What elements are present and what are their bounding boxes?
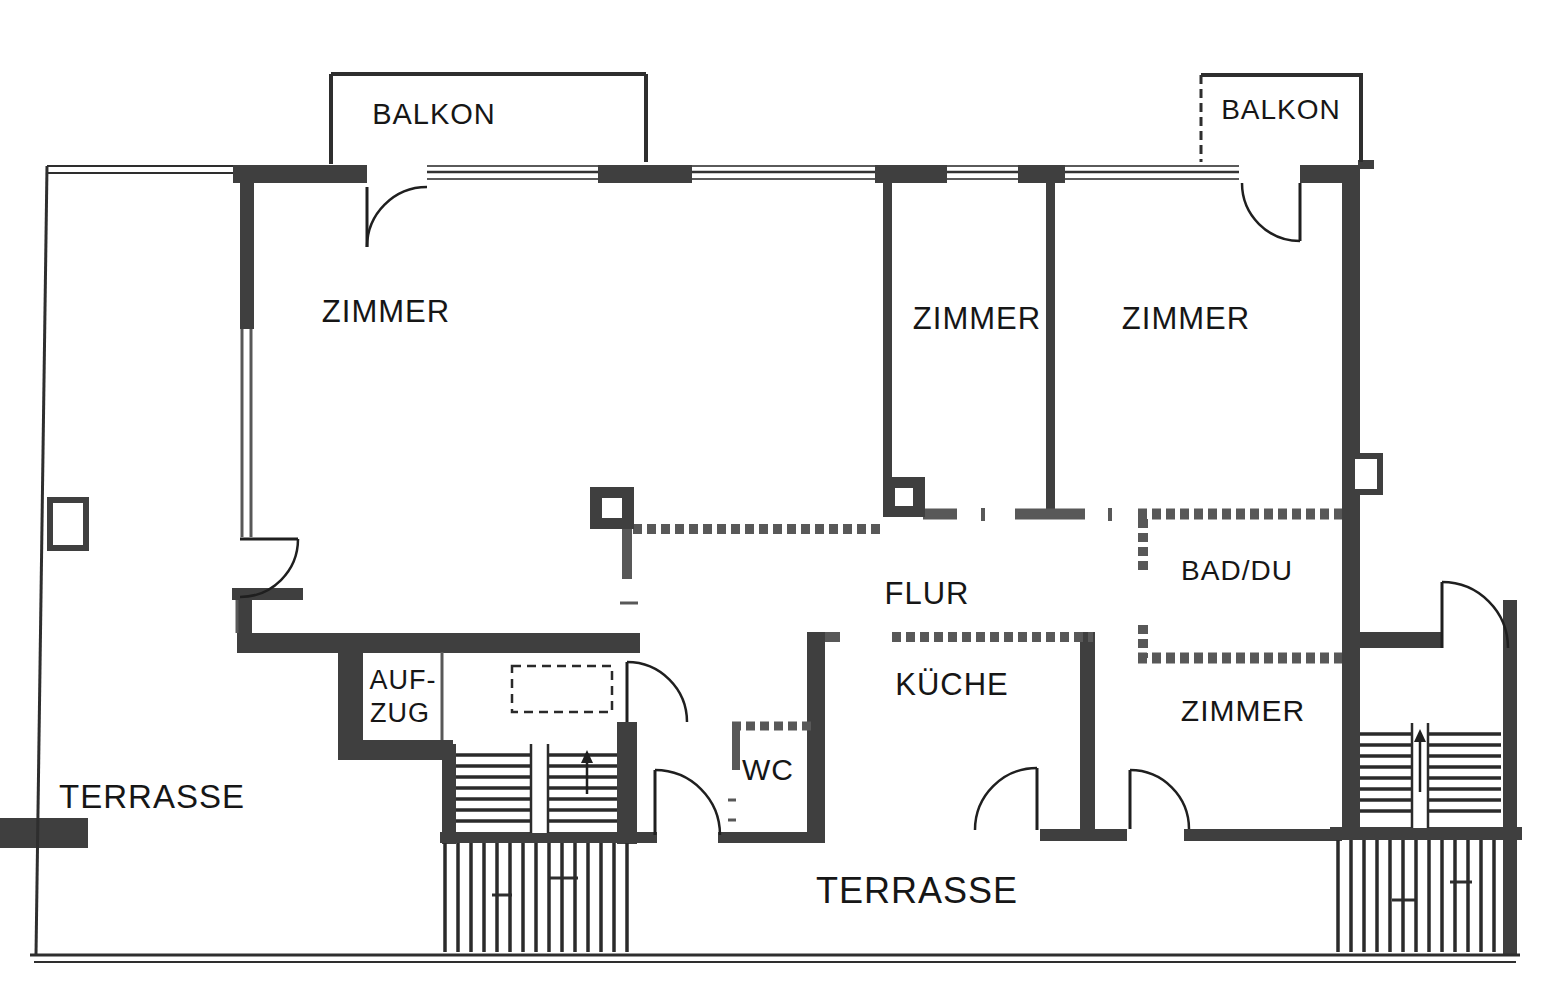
room-label-aufzug-line1: AUF- (370, 665, 437, 695)
stair-stringer (531, 744, 548, 833)
wall (598, 165, 692, 183)
room-label-balkon-right: BALKON (1221, 94, 1341, 125)
room-label-flur: FLUR (885, 576, 970, 611)
wall (718, 832, 807, 843)
wall (440, 832, 657, 843)
wall (1184, 829, 1342, 841)
pillar-core (895, 488, 913, 506)
room-label-kueche: KÜCHE (895, 667, 1009, 702)
wall (1018, 165, 1065, 183)
floor-plan-svg: BALKONBALKONZIMMERZIMMERZIMMERFLURBAD/DU… (0, 0, 1553, 1000)
wall (1360, 632, 1442, 648)
wall (338, 740, 453, 760)
wall (1046, 183, 1055, 515)
floor-plan-scan: BALKONBALKONZIMMERZIMMERZIMMERFLURBAD/DU… (0, 0, 1553, 1000)
wall (237, 595, 252, 637)
wall (1342, 165, 1360, 840)
room-label-bad-du: BAD/DU (1181, 555, 1293, 586)
room-label-zimmer-right: ZIMMER (1122, 301, 1250, 336)
room-label-aufzug-line2: ZUG (370, 698, 430, 728)
room-label-wc: WC (742, 753, 794, 786)
pillar-core (602, 498, 622, 518)
room-label-terrasse-west: TERRASSE (59, 778, 245, 815)
wall (442, 744, 456, 844)
room-label-balkon-left: BALKON (372, 98, 496, 130)
wall (875, 165, 947, 183)
room-label-terrasse-south: TERRASSE (816, 870, 1018, 911)
wall (1040, 829, 1127, 841)
wall (1080, 632, 1095, 832)
wall (1330, 827, 1522, 840)
wall (240, 165, 254, 329)
wall (883, 183, 892, 477)
room-label-zimmer-south: ZIMMER (1181, 694, 1305, 727)
wall (617, 722, 637, 844)
wall-fixture (50, 500, 86, 548)
paper-background (0, 0, 1553, 1000)
wall (237, 633, 640, 653)
wall (807, 632, 825, 843)
wall (1503, 600, 1517, 956)
room-label-zimmer-large: ZIMMER (322, 294, 450, 329)
wall-fixture (1352, 456, 1380, 492)
room-label-zimmer-middle: ZIMMER (913, 301, 1041, 336)
wall (0, 818, 88, 848)
